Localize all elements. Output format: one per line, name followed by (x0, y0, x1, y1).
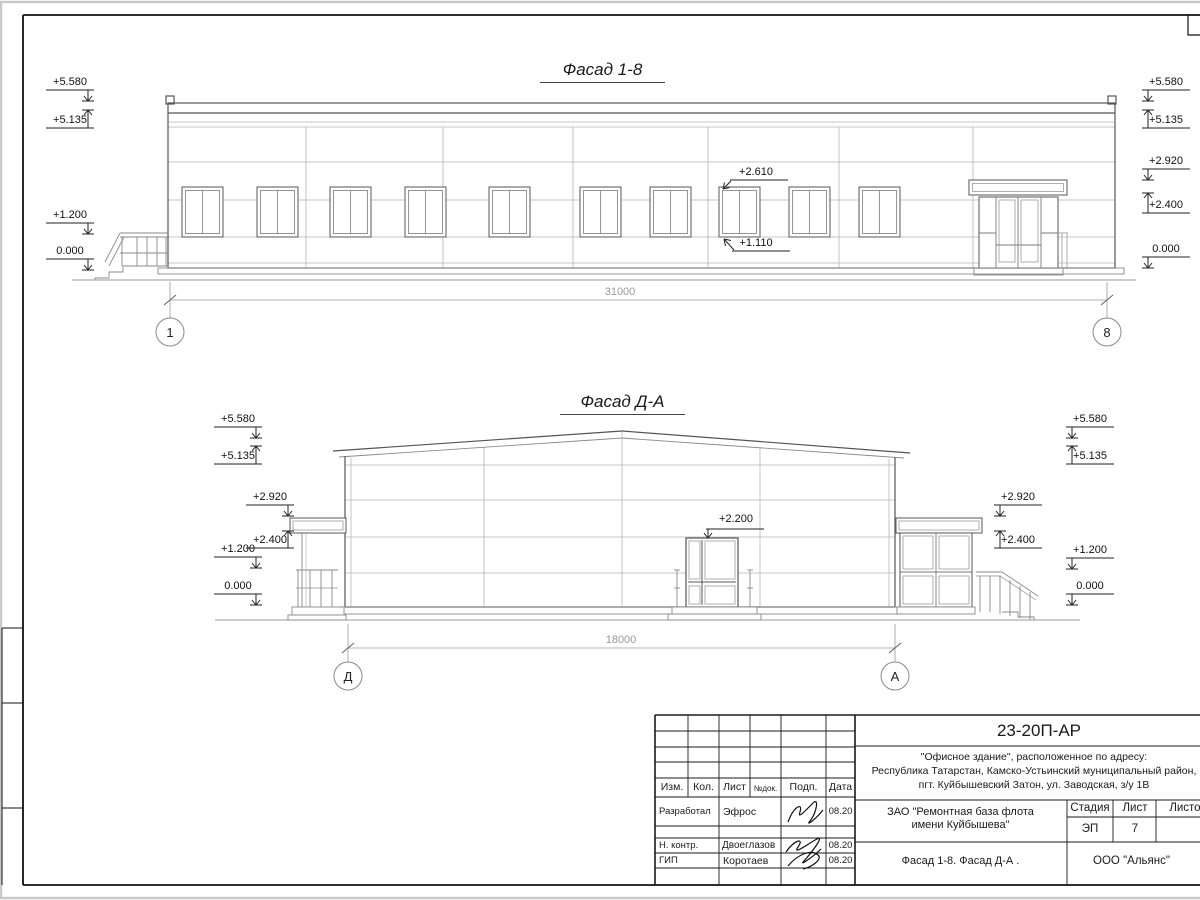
elevation-mark: +1.200 (214, 544, 262, 555)
role-ncontrol: Н. контр. (659, 841, 698, 852)
elevation-mark: +5.580 (1066, 414, 1114, 425)
elevation-mark: +2.400 (1142, 200, 1190, 211)
stage-value: ЭП (1065, 823, 1115, 836)
name-developer: Эфрос (723, 806, 756, 818)
sheet-title: Фасад 1-8. Фасад Д-А . (858, 855, 1063, 868)
elevation-mark: +5.135 (214, 451, 262, 462)
role-developer: Разработал (659, 807, 711, 818)
name-gip: Коротаев (723, 855, 768, 867)
col-header-data: Дата (826, 781, 855, 793)
signatures (786, 802, 823, 869)
elevation-mark: +5.580 (46, 77, 94, 88)
elevation-mark: 0.000 (1066, 581, 1114, 592)
organization-name: ООО "Альянс" (1069, 855, 1194, 868)
elevation-mark: +5.135 (1066, 451, 1114, 462)
client-name-line1: ЗАО "Ремонтная база флота (858, 806, 1063, 819)
elevation-mark: +2.610 (726, 167, 786, 178)
col-header-kol: Кол. (688, 781, 719, 793)
elevation-mark: +2.920 (1142, 156, 1190, 167)
client-name-line2: имени Куйбышева" (858, 819, 1063, 832)
elevation-mark: +2.200 (706, 514, 766, 525)
doc-number: 23-20П-АР (909, 721, 1169, 741)
elevation-mark: +5.135 (46, 115, 94, 126)
stage-header: Стадия (1065, 802, 1115, 815)
facade-1-8-entrance (969, 180, 1068, 275)
dimension-label: 18000 (591, 635, 651, 646)
date-developer: 08.20 (826, 807, 855, 818)
paper-edges (0, 2, 1200, 898)
axis-bubble-a: А (881, 670, 909, 683)
facade-d-a-elevation-marks (214, 427, 1114, 605)
role-gip: ГИП (659, 856, 678, 867)
facade-1-8-porch (95, 233, 168, 280)
elevation-mark: 0.000 (214, 581, 262, 592)
axis-bubble-d: Д (334, 670, 362, 683)
facade-d-a-door (668, 538, 761, 620)
sheet-header: Лист (1113, 802, 1157, 815)
facade-1-8-title: Фасад 1-8 (540, 60, 665, 83)
col-header-izm: Изм. (656, 781, 688, 793)
col-header-ndok: №док. (750, 784, 781, 793)
facade-1-8-drawing (46, 90, 1190, 346)
elevation-mark: 0.000 (46, 246, 94, 257)
facade-d-a-title: Фасад Д-А (560, 392, 685, 415)
col-header-list: Лист (719, 781, 750, 793)
name-ncontrol: Двоеглазов (722, 840, 775, 852)
elevation-mark: +2.400 (994, 535, 1042, 546)
axis-bubble-8: 8 (1093, 326, 1121, 339)
elevation-mark: +5.580 (214, 414, 262, 425)
project-address-line2: Республика Татарстан, Камско-Устьинский … (834, 765, 1200, 777)
elevation-mark: +5.580 (1142, 77, 1190, 88)
elevation-mark: +1.200 (46, 210, 94, 221)
elevation-mark: +1.200 (1066, 545, 1114, 556)
facade-1-8-windows (182, 187, 900, 237)
sheet-number: 7 (1113, 823, 1157, 836)
project-address-line3: пгт. Куйбышевский Затон, ул. Заводская, … (834, 779, 1200, 791)
project-address-line1: "Офисное здание", расположенное по адрес… (834, 751, 1200, 763)
elevation-mark: +2.920 (246, 492, 294, 503)
facade-d-a-drawing (214, 427, 1114, 690)
date-ncontrol: 08.20 (826, 841, 855, 852)
drawing-sheet: Фасад 1-8 Фасад Д-А +5.580 +5.135 +1.200… (0, 0, 1200, 900)
date-gip: 08.20 (826, 856, 855, 867)
axis-bubble-1: 1 (156, 326, 184, 339)
elevation-mark: 0.000 (1142, 244, 1190, 255)
elevation-mark: +1.110 (726, 238, 786, 249)
elevation-mark: +2.920 (994, 492, 1042, 503)
sheets-header: Листов (1158, 802, 1200, 815)
dimension-label: 31000 (590, 287, 650, 298)
facade-d-a-left-annex (288, 518, 346, 620)
col-header-podp: Подп. (781, 781, 826, 793)
elevation-mark: +5.135 (1142, 115, 1190, 126)
